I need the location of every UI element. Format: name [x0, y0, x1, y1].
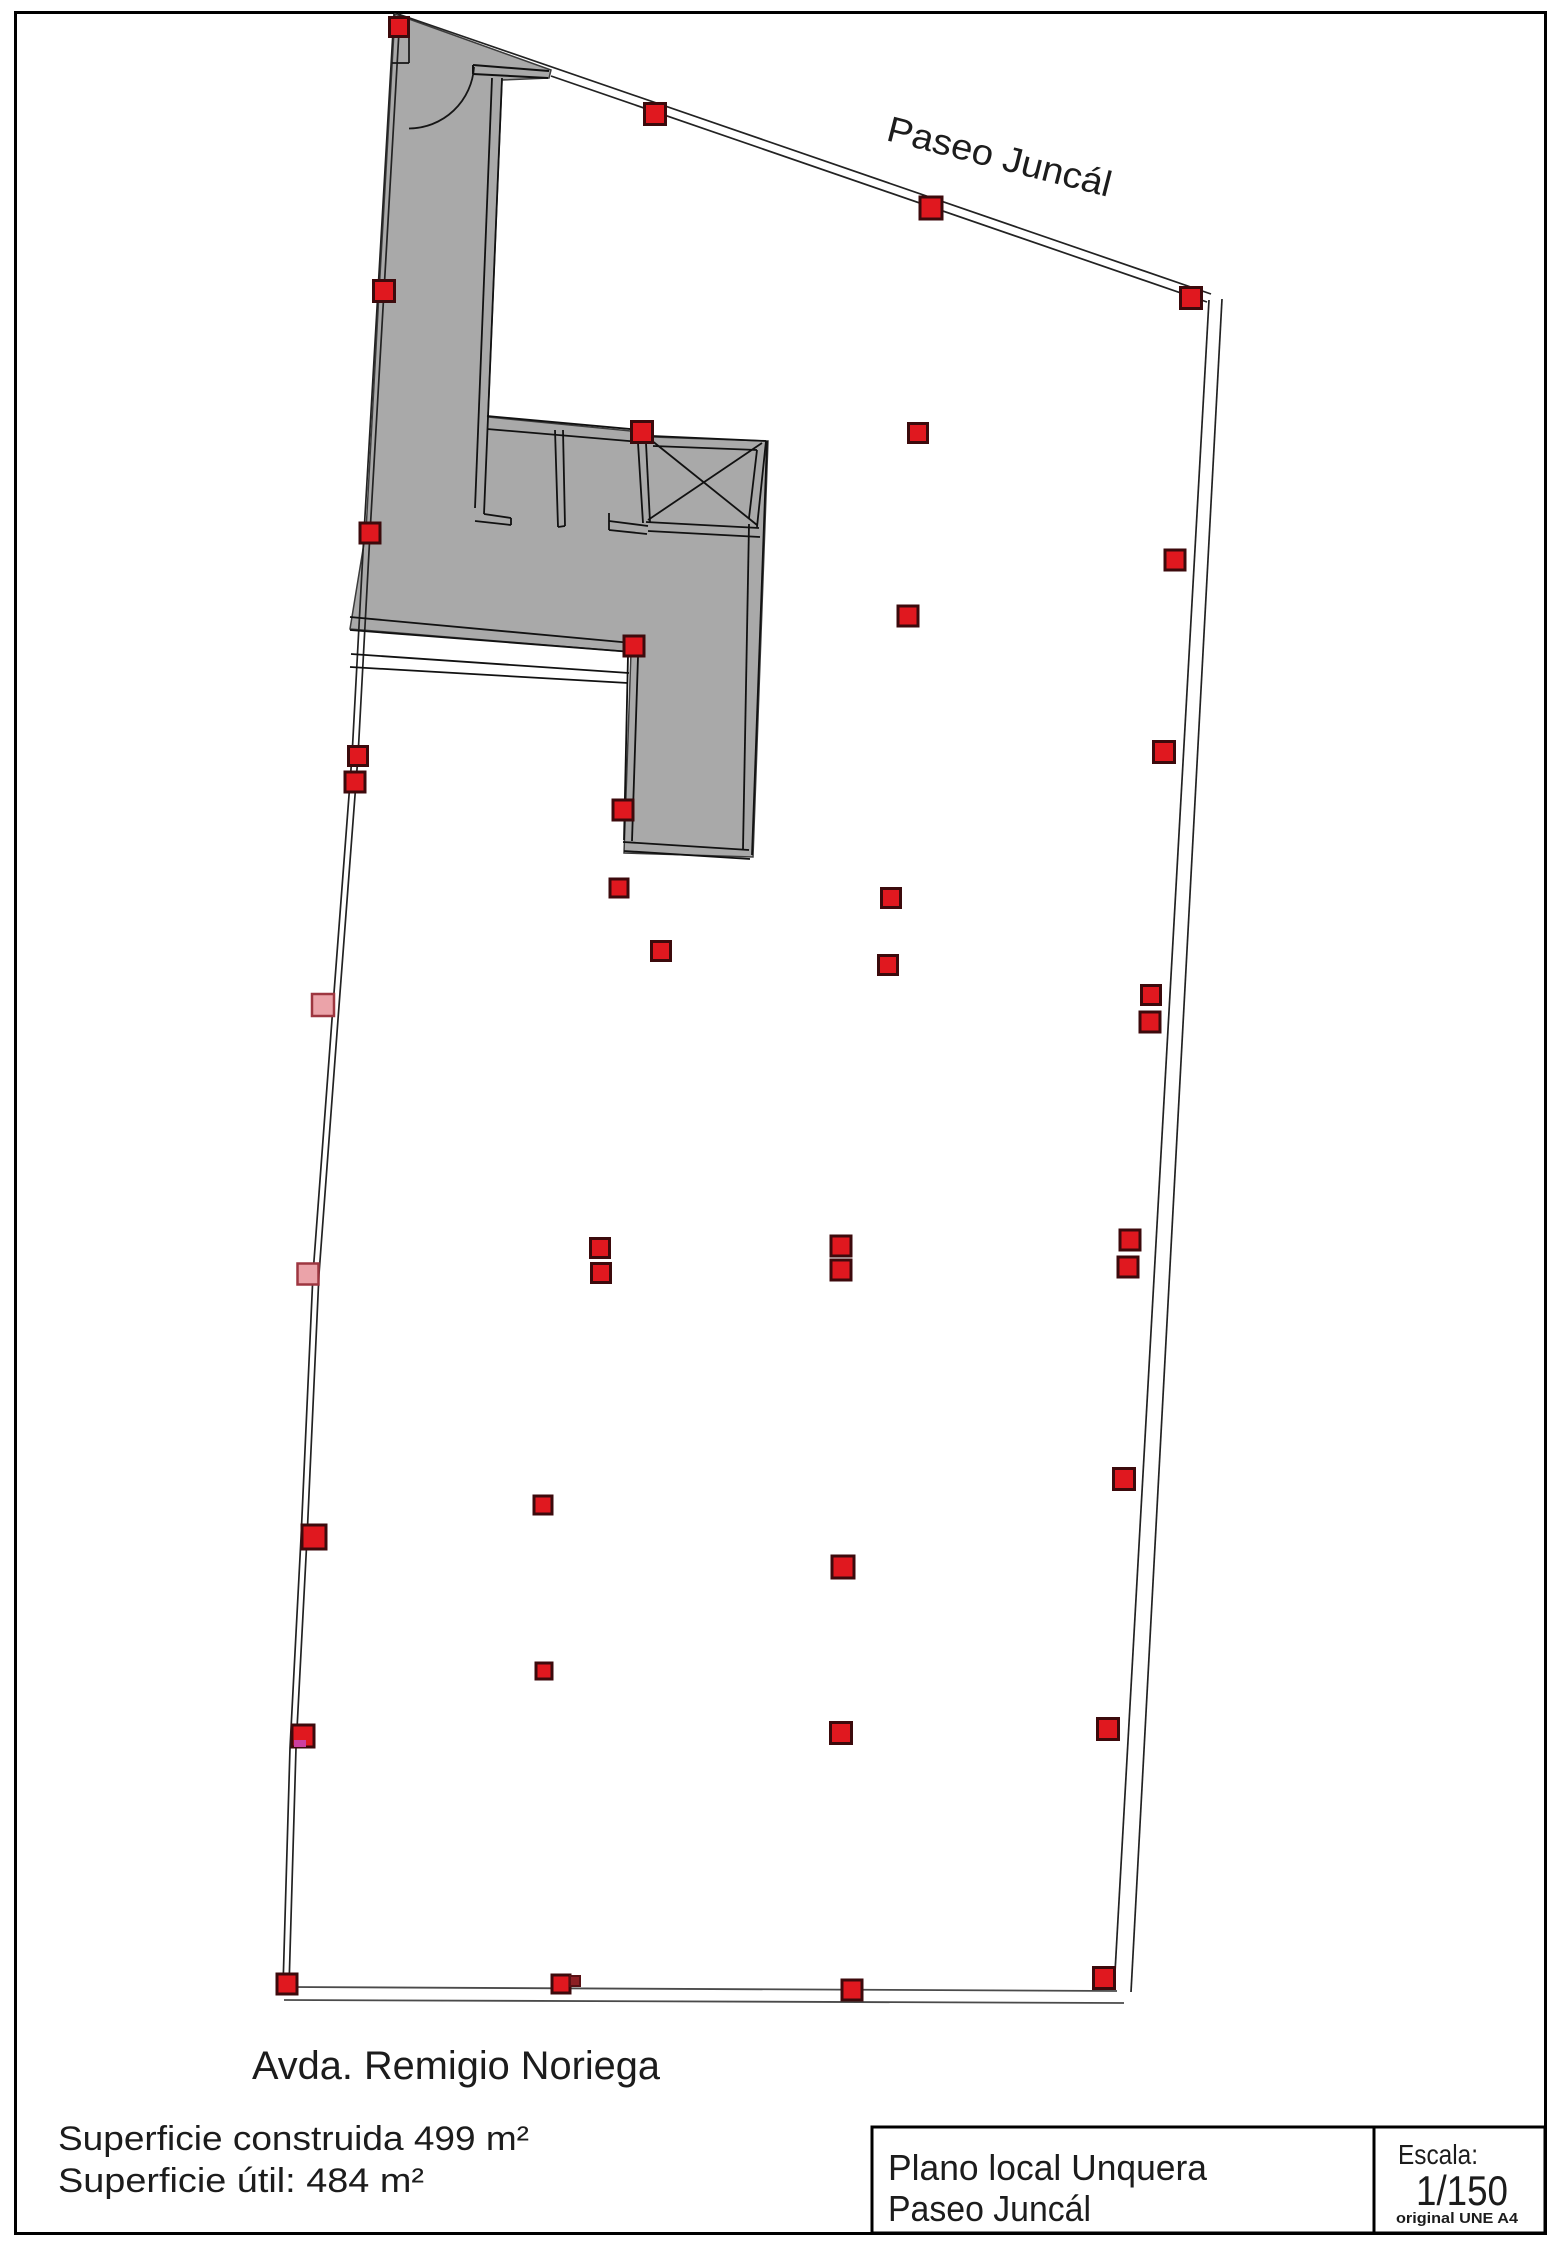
svg-text:Escala:: Escala: [1398, 2139, 1478, 2170]
svg-text:Paseo Juncál: Paseo Juncál [888, 2188, 1091, 2229]
svg-text:1/150: 1/150 [1416, 2167, 1508, 2214]
svg-text:Plano local Unquera: Plano local Unquera [888, 2147, 1208, 2188]
svg-text:Superficie construida 499 m²: Superficie construida 499 m² [58, 2120, 529, 2158]
svg-text:Superficie útil: 484 m²: Superficie útil: 484 m² [58, 2162, 424, 2200]
svg-text:Paseo Juncál: Paseo Juncál [883, 108, 1116, 205]
svg-text:Avda. Remigio Noriega: Avda. Remigio Noriega [252, 2044, 661, 2088]
svg-text:original UNE A4: original UNE A4 [1396, 2210, 1519, 2227]
